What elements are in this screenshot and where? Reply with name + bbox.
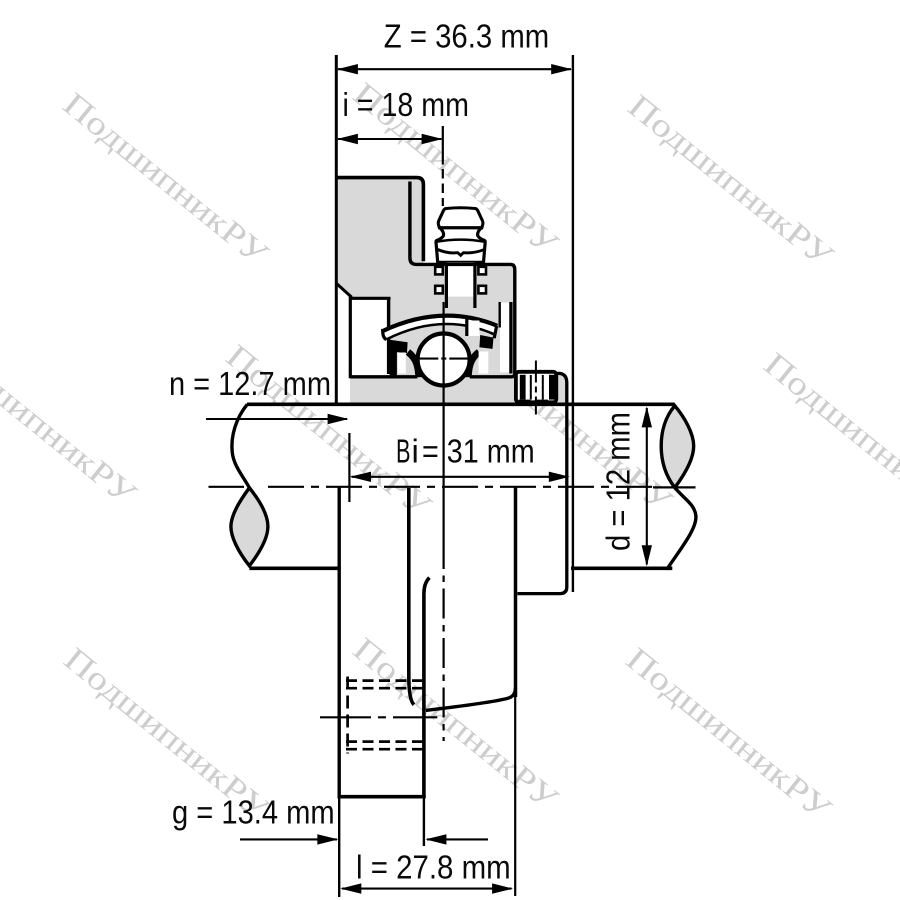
svg-text:g = 13.4 mm: g = 13.4 mm xyxy=(172,794,335,831)
svg-text:l = 27.8 mm: l = 27.8 mm xyxy=(356,849,511,886)
svg-text:Z = 36.3 mm: Z = 36.3 mm xyxy=(384,18,549,55)
svg-text:d = 12 mm: d = 12 mm xyxy=(600,412,637,551)
svg-text:n = 12.7 mm: n = 12.7 mm xyxy=(169,365,331,402)
svg-text:i: i xyxy=(412,433,419,470)
svg-text:i = 18 mm: i = 18 mm xyxy=(343,86,469,123)
svg-text:B: B xyxy=(396,432,411,469)
svg-text:= 31 mm: = 31 mm xyxy=(422,432,535,469)
